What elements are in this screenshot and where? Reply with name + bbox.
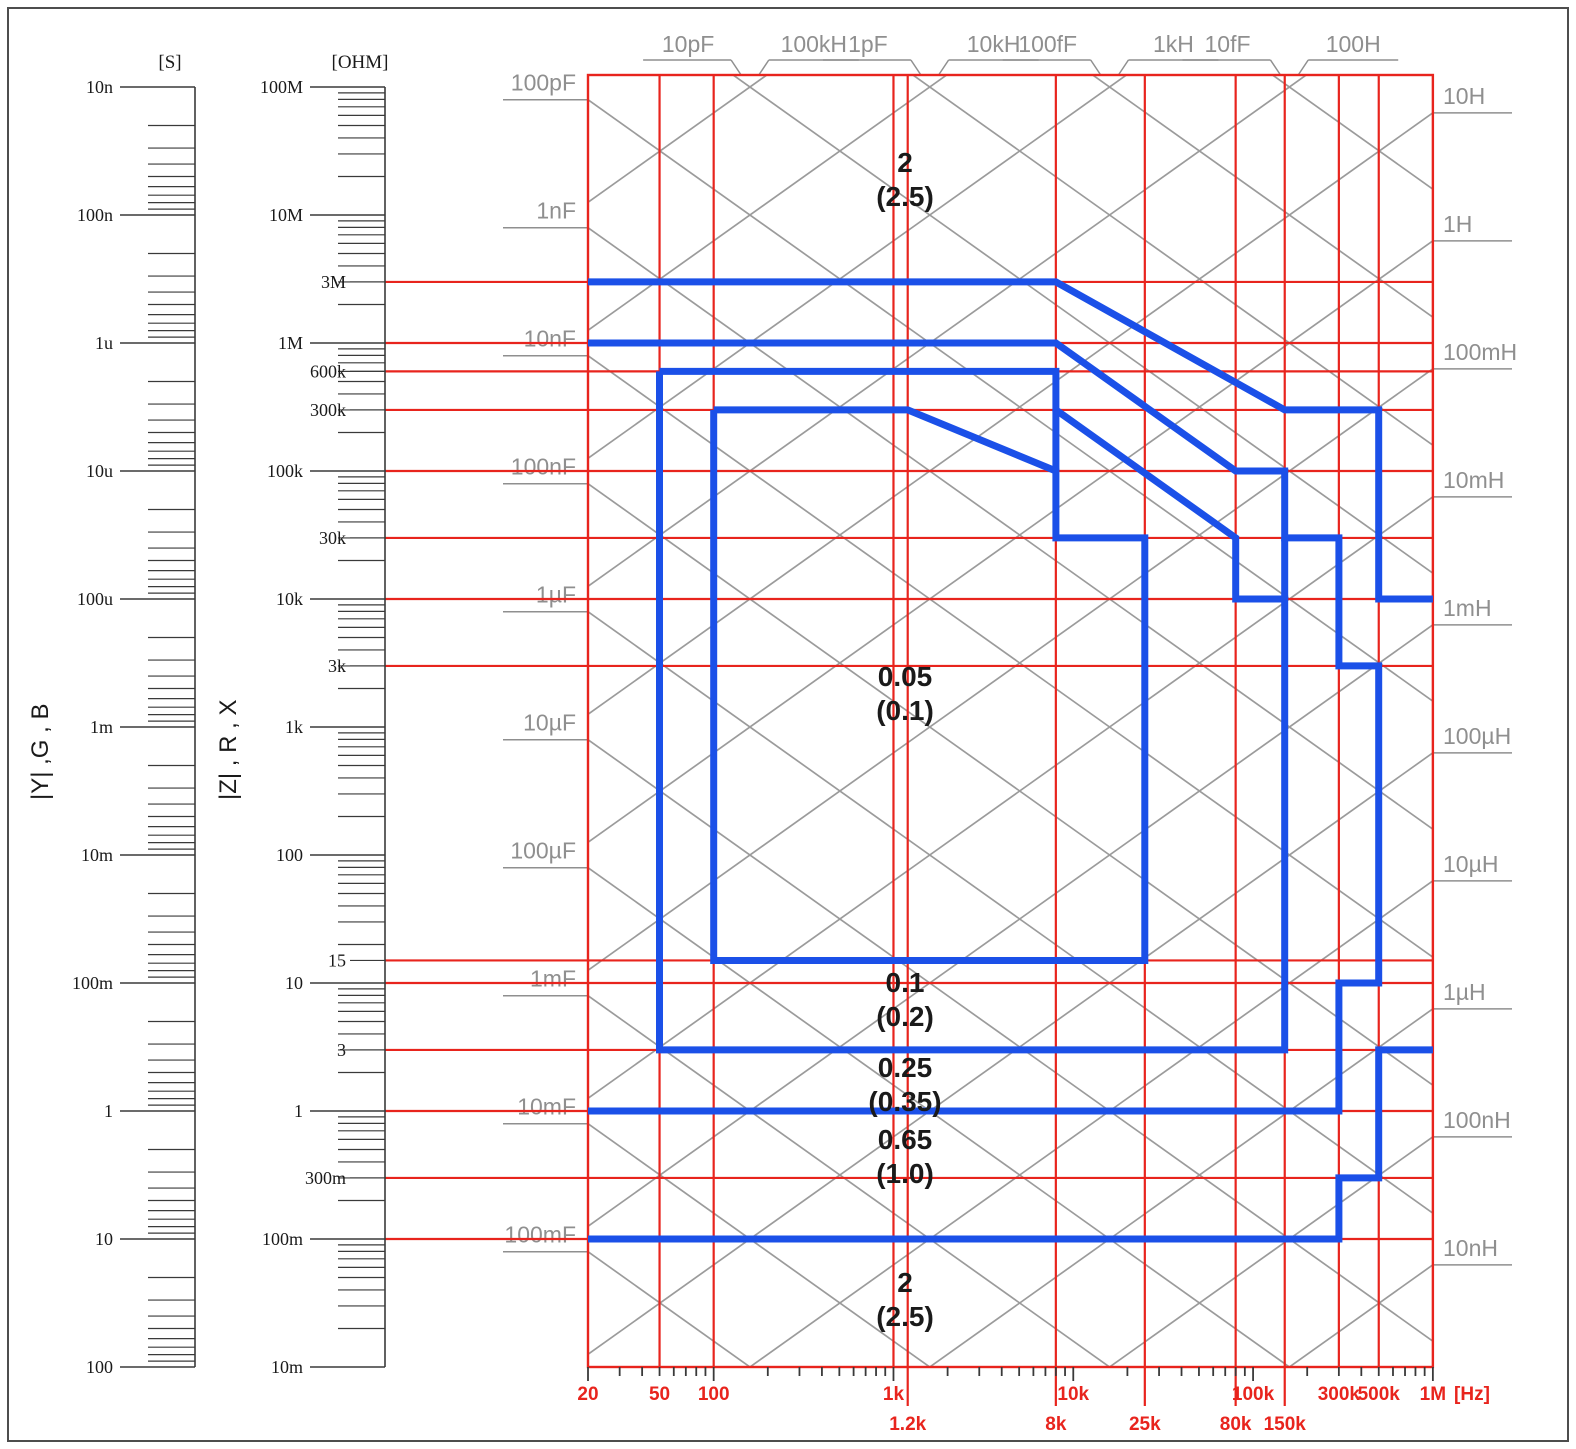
freq-label-150k: 150k — [1264, 1414, 1307, 1435]
cap-label-100mF: 100mF — [504, 1222, 576, 1248]
impedance-scale-decade-label-100k: 100k — [267, 461, 303, 481]
cap-label-1mF: 1mF — [530, 966, 576, 992]
freq-label-50: 50 — [649, 1384, 670, 1405]
region-label-line2: (2.5) — [876, 1301, 934, 1332]
admittance-scale-decade-label-100: 100 — [86, 1357, 113, 1377]
ind-label-connector-1kH — [1118, 60, 1128, 75]
freq-label-8k: 8k — [1045, 1414, 1067, 1435]
ind-label-connector-10kH — [939, 60, 949, 75]
ind-label-10nH: 10nH — [1443, 1235, 1498, 1261]
region-label-line2: (0.1) — [876, 695, 934, 726]
impedance-scale-decade-label-100: 100 — [276, 845, 303, 865]
admittance-scale-header: [S] — [158, 52, 181, 73]
admittance-scale-decade-label-1u: 1u — [95, 333, 113, 353]
boundary-1M-band — [588, 343, 1379, 1111]
admittance-scale-decade-label-10u: 10u — [86, 461, 113, 481]
region-label-line1: 2 — [897, 147, 913, 178]
region-label-line2: (2.5) — [876, 181, 934, 212]
impedance-sub-label-300m: 300m — [305, 1168, 346, 1188]
freq-label-25k: 25k — [1129, 1414, 1161, 1435]
cap-label-10µF: 10µF — [523, 710, 576, 736]
region-label-line2: (0.2) — [876, 1001, 934, 1032]
freq-label-1M: 1M — [1420, 1384, 1446, 1405]
ind-label-connector-100H — [1298, 60, 1308, 75]
freq-label-100k: 100k — [1232, 1384, 1275, 1405]
ind-label-10µH: 10µH — [1443, 851, 1498, 877]
freq-label-100: 100 — [698, 1384, 730, 1405]
impedance-scale-decade-label-10: 10 — [285, 973, 303, 993]
impedance-scale: [OHM]100M10M1M100k10k1k100101100m10m3M60… — [260, 52, 389, 1377]
ind-label-100mH: 100mH — [1443, 339, 1517, 365]
ind-label-connector-100kH — [759, 60, 769, 75]
impedance-scale-decade-label-1: 1 — [294, 1101, 303, 1121]
admittance-scale-decade-label-1: 1 — [104, 1101, 113, 1121]
cap-label-connector-10pF — [731, 60, 741, 75]
impedance-scale-decade-label-100m: 100m — [262, 1229, 303, 1249]
impedance-accuracy-figure: 100mF10mF1mF100µF10µF1µF100nF10nF1nF100p… — [0, 0, 1576, 1449]
impedance-sub-label-3: 3 — [337, 1040, 346, 1060]
freq-label-300k: 300k — [1318, 1384, 1361, 1405]
freq-label-20: 20 — [577, 1384, 598, 1405]
freq-label-1.2k: 1.2k — [889, 1414, 926, 1435]
ind-label-10mH: 10mH — [1443, 467, 1504, 493]
cap-label-100nF: 100nF — [511, 454, 576, 480]
region-label-2: 0.1(0.2) — [876, 967, 934, 1032]
cap-label-1µF: 1µF — [536, 582, 576, 608]
impedance-scale-decade-label-10k: 10k — [276, 589, 303, 609]
freq-label-80k: 80k — [1220, 1414, 1252, 1435]
impedance-sub-label-3M: 3M — [321, 272, 346, 292]
region-label-line1: 0.05 — [878, 661, 933, 692]
cap-label-connector-10fF — [1271, 60, 1281, 75]
region-label-line1: 0.1 — [886, 967, 925, 998]
cap-label-1nF: 1nF — [536, 198, 576, 224]
ind-label-1µH: 1µH — [1443, 979, 1486, 1005]
region-label-4: 0.65(1.0) — [876, 1124, 934, 1189]
cap-label-10pF: 10pF — [662, 31, 714, 57]
impedance-sub-label-600k: 600k — [310, 361, 346, 381]
impedance-sub-label-30k: 30k — [319, 528, 346, 548]
admittance-scale-decade-label-10n: 10n — [86, 77, 113, 97]
impedance-sub-label-300k: 300k — [310, 400, 346, 420]
freq-label-500k: 500k — [1358, 1384, 1401, 1405]
admittance-scale-decade-label-100n: 100n — [77, 205, 113, 225]
region-label-line2: (1.0) — [876, 1158, 934, 1189]
impedance-scale-decade-label-1M: 1M — [278, 333, 303, 353]
region-label-1: 0.05(0.1) — [876, 661, 934, 726]
region-label-line2: (0.35) — [868, 1086, 941, 1117]
impedance-scale-decade-label-10M: 10M — [269, 205, 303, 225]
region-label-0: 2(2.5) — [876, 147, 934, 212]
axis-titles: |Y| ,G , B|Z| , R , X — [27, 700, 242, 800]
impedance-scale-decade-label-100M: 100M — [260, 77, 303, 97]
region-label-3: 0.25(0.35) — [868, 1052, 941, 1117]
admittance-scale-decade-label-100m: 100m — [72, 973, 113, 993]
cap-label-10mF: 10mF — [517, 1094, 576, 1120]
reactance-labels: 100mF10mF1mF100µF10µF1µF100nF10nF1nF100p… — [503, 31, 1517, 1265]
region-label-5: 2(2.5) — [876, 1267, 934, 1332]
ind-label-100nH: 100nH — [1443, 1107, 1511, 1133]
impedance-scale-decade-label-1k: 1k — [285, 717, 303, 737]
region-label-line1: 0.65 — [878, 1124, 933, 1155]
impedance-scale-decade-label-10m: 10m — [271, 1357, 303, 1377]
impedance-axis-title: |Z| , R , X — [215, 700, 242, 800]
admittance-scale: [S]10n100n1u10u100u1m10m100m110100 — [72, 52, 195, 1377]
cap-label-100µF: 100µF — [510, 838, 576, 864]
freq-unit-label: [Hz] — [1454, 1384, 1490, 1405]
cap-label-10fF: 10fF — [1204, 31, 1250, 57]
freq-label-1k: 1k — [883, 1384, 905, 1405]
cap-label-100pF: 100pF — [511, 70, 576, 96]
frequency-axis: 20501001k10k100k300k500k1M[Hz]1.2k8k25k8… — [577, 1367, 1490, 1435]
cap-label-1pF: 1pF — [848, 31, 888, 57]
freq-label-10k: 10k — [1057, 1384, 1089, 1405]
admittance-scale-decade-label-1m: 1m — [90, 717, 113, 737]
admittance-axis-title: |Y| ,G , B — [27, 704, 54, 801]
ind-label-1mH: 1mH — [1443, 595, 1492, 621]
ind-label-100µH: 100µH — [1443, 723, 1511, 749]
admittance-scale-decade-label-10: 10 — [95, 1229, 113, 1249]
impedance-sub-label-15: 15 — [328, 950, 346, 970]
cap-label-100fF: 100fF — [1018, 31, 1077, 57]
impedance-accuracy-chart: 100mF10mF1mF100µF10µF1µF100nF10nF1nF100p… — [0, 0, 1576, 1449]
cap-label-connector-1pF — [911, 60, 921, 75]
admittance-scale-decade-label-10m: 10m — [81, 845, 113, 865]
impedance-scale-header: [OHM] — [332, 52, 389, 73]
cap-label-10nF: 10nF — [524, 326, 576, 352]
figure-border — [8, 8, 1568, 1441]
ind-label-100H: 100H — [1326, 31, 1381, 57]
region-label-line1: 2 — [897, 1267, 913, 1298]
ind-label-1kH: 1kH — [1153, 31, 1194, 57]
red-grid — [385, 75, 1433, 1406]
impedance-sub-label-3k: 3k — [328, 656, 346, 676]
ind-label-10H: 10H — [1443, 83, 1485, 109]
ind-label-100kH: 100kH — [781, 31, 847, 57]
region-label-line1: 0.25 — [878, 1052, 933, 1083]
ind-label-1H: 1H — [1443, 211, 1472, 237]
admittance-scale-decade-label-100u: 100u — [77, 589, 113, 609]
cap-label-connector-100fF — [1091, 60, 1101, 75]
ind-label-10kH: 10kH — [967, 31, 1021, 57]
